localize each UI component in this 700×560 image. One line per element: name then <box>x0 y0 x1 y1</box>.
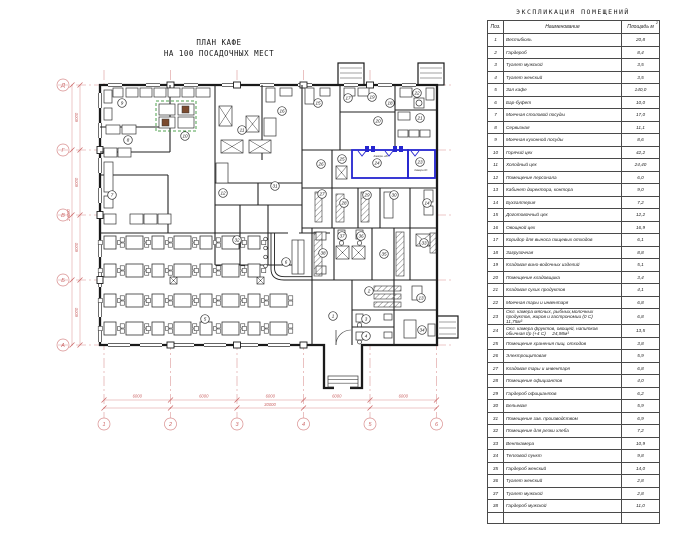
dim-label: 6000 <box>266 394 276 399</box>
cell-pos: 28 <box>488 375 504 388</box>
cell-name: Помещение хранения пищ. отходов <box>504 337 622 350</box>
cell-pos: 11 <box>488 159 504 172</box>
chair <box>146 268 150 272</box>
chair <box>120 301 124 305</box>
plan-title-line2: НА 100 ПОСАДОЧНЫХ МЕСТ <box>164 49 274 58</box>
room-number: 9 <box>121 101 124 106</box>
cell-name: Зал кафе <box>504 84 622 97</box>
explication-title: ЭКСПЛИКАЦИЯ ПОМЕЩЕНИЙ <box>487 8 659 16</box>
cell-pos: 37 <box>488 487 504 500</box>
room-number: 13 <box>418 296 424 301</box>
table-row: 35Гардероб женский14,0 <box>488 462 660 475</box>
bar-stool <box>264 255 268 259</box>
axis-number: 3 <box>235 422 239 428</box>
cell-name: Туалет женский <box>504 71 622 84</box>
cell-area: 24,40 <box>622 159 660 172</box>
room-number: 14 <box>424 201 430 206</box>
dim-label: 6000 <box>332 394 342 399</box>
chair <box>242 268 246 272</box>
plan-title-line1: ПЛАН КАФЕ <box>196 38 241 47</box>
cell-name: Доготовочный цех <box>504 209 622 222</box>
table-row: 6Бар-буфет10,0 <box>488 96 660 109</box>
table-row: 1Вестибюль20,8 <box>488 34 660 47</box>
room-number: 19 <box>369 95 375 100</box>
chair <box>120 329 124 333</box>
table-row: 18Загрузочная8,8 <box>488 246 660 259</box>
table-row: 36Туалет женский2,8 <box>488 475 660 488</box>
table-row: 31Помещение зав. производством6,9 <box>488 412 660 425</box>
cell-pos: 29 <box>488 387 504 400</box>
dim-label: 6000 <box>199 394 209 399</box>
table-row: 3Туалет мужской3,5 <box>488 59 660 72</box>
cell-area: 7,2 <box>622 425 660 438</box>
table-row: 28Помещение официантов4,0 <box>488 375 660 388</box>
cell-area: 5,9 <box>622 400 660 413</box>
dining-table <box>104 236 116 249</box>
cell-pos: 23 <box>488 309 504 325</box>
cell-area: 6,9 <box>622 412 660 425</box>
room-number: 33 <box>421 241 427 246</box>
chair <box>262 240 266 244</box>
dining-table <box>126 294 143 307</box>
room-number: 30 <box>391 193 397 198</box>
table-row: 17Коридор для выноса пищевых отходов6,1 <box>488 234 660 247</box>
room-number: 34 <box>419 328 425 333</box>
chair <box>120 238 124 242</box>
axis-letter: Д <box>60 83 65 89</box>
axis-letter: Г <box>62 148 66 154</box>
chair <box>168 324 172 328</box>
chair <box>98 240 102 244</box>
room-number: 18 <box>387 101 393 106</box>
dining-table <box>200 322 212 335</box>
room-number: 38 <box>320 251 326 256</box>
chair <box>289 329 293 333</box>
cell-area: 42,2 <box>622 146 660 159</box>
room-number: 27 <box>318 192 325 197</box>
cell-area: 9,8 <box>622 450 660 463</box>
chair <box>168 301 172 305</box>
axis-number: 2 <box>168 422 172 428</box>
cell-name: Гардероб официантов <box>504 387 622 400</box>
cell-area: 10,0 <box>622 96 660 109</box>
dining-table <box>248 264 260 277</box>
dim-label: 6000 <box>74 307 79 317</box>
cell-pos: 17 <box>488 234 504 247</box>
bar-stool <box>264 246 268 250</box>
cell-area: 3,8 <box>622 337 660 350</box>
chair <box>242 326 246 330</box>
room-number: 31 <box>272 184 278 189</box>
cell-area: 17,0 <box>622 109 660 122</box>
cell-name: Гардероб мужской <box>504 500 622 513</box>
cell-name: Туалет женский <box>504 475 622 488</box>
dim-label: 6000 <box>133 394 143 399</box>
cell-name: Кабинет директора, контора <box>504 184 622 197</box>
dining-table <box>104 322 116 335</box>
chair <box>98 298 102 302</box>
room-number: 36 <box>358 234 364 239</box>
room-number: 10 <box>182 134 188 139</box>
cell-name: Электрощитовая <box>504 350 622 363</box>
cell-pos: 20 <box>488 271 504 284</box>
chair <box>216 271 220 275</box>
dim-label: 6000 <box>74 242 79 252</box>
cell-area: 6,8 <box>622 309 660 325</box>
cell-pos: 35 <box>488 462 504 475</box>
dining-table <box>248 322 260 335</box>
dining-table <box>152 236 164 249</box>
cell-area: 3,4 <box>622 271 660 284</box>
chair <box>194 268 198 272</box>
table-row: 14Бухгалтерия7,2 <box>488 196 660 209</box>
chair <box>120 271 124 275</box>
dining-table <box>200 294 212 307</box>
cell-pos: 22 <box>488 296 504 309</box>
cell-area: 6,8 <box>622 362 660 375</box>
chair <box>146 326 150 330</box>
cell-name: Помещение кладовщика <box>504 271 622 284</box>
cell-name: Моечная тары и инвентаря <box>504 296 622 309</box>
cell-pos: 1 <box>488 34 504 47</box>
cell-name: Тепловой пункт <box>504 450 622 463</box>
dining-table <box>126 322 143 335</box>
cell-pos: 21 <box>488 284 504 297</box>
room-number: 20 <box>374 119 381 124</box>
table-row: 29Гардероб официантов6,2 <box>488 387 660 400</box>
cell-pos: 6 <box>488 96 504 109</box>
dim-total-bottom: 30000 <box>264 402 276 407</box>
cell-name: Моечная столовой посуды <box>504 109 622 122</box>
room-number: 3 <box>365 317 368 322</box>
chair <box>120 243 124 247</box>
cell-pos: 36 <box>488 475 504 488</box>
cell-pos: 18 <box>488 246 504 259</box>
table-row: 12Помещение персонала6,0 <box>488 171 660 184</box>
chair <box>216 296 220 300</box>
cell-area: 140,0 <box>622 84 660 97</box>
table-row: 23Охл. камера мясных, рыбных,молочных пр… <box>488 309 660 325</box>
cell-area: 11,0 <box>622 500 660 513</box>
table-row: 19Кладовая вино-водочных изделий5,1 <box>488 259 660 272</box>
cell-name: Бельевая <box>504 400 622 413</box>
cell-pos: 14 <box>488 196 504 209</box>
dim-label: 6000 <box>74 177 79 187</box>
dining-table <box>222 322 239 335</box>
cell-area: 3,5 <box>622 59 660 72</box>
dining-table <box>174 236 191 249</box>
cell-name: Горячий цех <box>504 146 622 159</box>
cell-area: 13,5 <box>622 325 660 338</box>
cell-area: 9,0 <box>622 184 660 197</box>
dining-table <box>174 322 191 335</box>
cell-name: Коридор для выноса пищевых отходов <box>504 234 622 247</box>
cell-area: 14,0 <box>622 462 660 475</box>
cell-area: 7,2 <box>622 196 660 209</box>
chair <box>264 329 268 333</box>
cell-name: Кладовая сухих продуктов <box>504 284 622 297</box>
room-number: 16 <box>279 109 285 114</box>
col-header-name: Наименование <box>504 21 622 34</box>
table-row: 25Помещение хранения пищ. отходов3,8 <box>488 337 660 350</box>
cell-pos: 27 <box>488 362 504 375</box>
dining-table <box>152 264 164 277</box>
table-row: 33Венткамера10,9 <box>488 437 660 450</box>
dining-table <box>104 264 116 277</box>
col-header-pos: Поз. <box>488 21 504 34</box>
room-number: 25 <box>338 157 345 162</box>
table-row: 5Зал кафе140,0 <box>488 84 660 97</box>
cell-name: Охл. камера фруктов, овощей, напитков об… <box>504 325 622 338</box>
cell-pos: 2 <box>488 46 504 59</box>
chair <box>98 326 102 330</box>
table-row: 38Гардероб мужской11,0 <box>488 500 660 513</box>
cell-pos: 13 <box>488 184 504 197</box>
room-number: 5 <box>204 317 207 322</box>
chair <box>262 268 266 272</box>
axis-number: 6 <box>435 422 439 428</box>
chair <box>168 238 172 242</box>
chair <box>120 266 124 270</box>
chair <box>194 326 198 330</box>
room-number: 12 <box>220 191 226 196</box>
dining-table <box>104 294 116 307</box>
cell-area: 3,5 <box>622 71 660 84</box>
dining-table <box>270 294 287 307</box>
dining-table <box>152 322 164 335</box>
table-row: 27Кладовая тары и инвентаря6,8 <box>488 362 660 375</box>
cell-name: Холодный цех <box>504 159 622 172</box>
room-number: 7 <box>111 193 114 198</box>
cell-area: 6,8 <box>622 296 660 309</box>
chair <box>216 329 220 333</box>
dining-table <box>174 294 191 307</box>
cell-name: Охл. камера мясных, рыбных,молочных прод… <box>504 309 622 325</box>
cell-pos: 12 <box>488 171 504 184</box>
cell-area: 6,1 <box>622 234 660 247</box>
table-row: 9Моечная кухонной посуды8,6 <box>488 134 660 147</box>
cell-area: 8,6 <box>622 134 660 147</box>
cell-pos: 4 <box>488 71 504 84</box>
chair <box>194 298 198 302</box>
room-number: 11 <box>240 128 245 133</box>
room-number: 21 <box>416 116 423 121</box>
chair <box>168 329 172 333</box>
table-row: 13Кабинет директора, контора9,0 <box>488 184 660 197</box>
table-row: 8Сервизная11,1 <box>488 121 660 134</box>
cell-pos: 15 <box>488 209 504 222</box>
room-number: 1 <box>332 314 335 319</box>
chair <box>289 296 293 300</box>
chair <box>242 298 246 302</box>
dining-table <box>174 264 191 277</box>
chair <box>289 301 293 305</box>
table-row: 22Моечная тары и инвентаря6,8 <box>488 296 660 309</box>
table-row: 32Помещение для резки хлеба7,2 <box>488 425 660 438</box>
explication-table: Поз. Наименование Площадь м2 1Вестибюль2… <box>487 20 660 524</box>
dining-table <box>200 236 212 249</box>
table-row: 16Овощной цех16,9 <box>488 221 660 234</box>
cell-pos: 5 <box>488 84 504 97</box>
dim-total-left: 24000 <box>66 209 71 222</box>
cell-name: Помещение персонала <box>504 171 622 184</box>
dining-table <box>248 294 260 307</box>
cell-area: 6,2 <box>622 387 660 400</box>
cell-area: 2,8 <box>622 487 660 500</box>
cell-pos: 33 <box>488 437 504 450</box>
dining-table <box>222 264 239 277</box>
cell-area: 5,1 <box>622 259 660 272</box>
chair <box>264 324 268 328</box>
axis-letter: В <box>61 213 65 219</box>
table-header-row: Поз. Наименование Площадь м2 <box>488 21 660 34</box>
cell-pos: 3 <box>488 59 504 72</box>
room-number: 35 <box>381 252 387 257</box>
dining-table <box>222 294 239 307</box>
cell-pos: 30 <box>488 400 504 413</box>
chair <box>216 301 220 305</box>
table-row: 15Доготовочный цех12,2 <box>488 209 660 222</box>
col-header-area: Площадь м2 <box>622 21 660 34</box>
dim-label: 6000 <box>399 394 409 399</box>
chair <box>168 266 172 270</box>
cell-pos: 25 <box>488 337 504 350</box>
chair <box>216 324 220 328</box>
cell-name: Венткамера <box>504 437 622 450</box>
chair <box>120 324 124 328</box>
cell-name: Туалет мужской <box>504 59 622 72</box>
cell-area: 2,8 <box>622 475 660 488</box>
table-row: 34Тепловой пункт9,8 <box>488 450 660 463</box>
chair <box>146 240 150 244</box>
cell-name: Помещение зав. производством <box>504 412 622 425</box>
dining-table <box>126 264 143 277</box>
chair <box>98 268 102 272</box>
table-row-empty <box>488 512 660 523</box>
cell-name: Загрузочная <box>504 246 622 259</box>
room24-label: Камера +4С <box>374 154 389 158</box>
room-number: 26 <box>317 162 324 167</box>
floor-plan: Камера +4С Камера 0С 1234567891011121314… <box>0 0 487 560</box>
room-number: 32 <box>234 238 240 243</box>
room-number: 24 <box>373 161 380 166</box>
chair <box>264 301 268 305</box>
dining-table <box>200 264 212 277</box>
dining-table <box>248 236 260 249</box>
axis-number: 5 <box>368 422 372 428</box>
room-number: 2 <box>367 289 371 294</box>
cell-pos: 19 <box>488 259 504 272</box>
room-number: 15 <box>315 101 321 106</box>
table-row: 37Туалет мужской2,8 <box>488 487 660 500</box>
axis-letter: А <box>60 343 65 349</box>
table-row: 21Кладовая сухих продуктов4,1 <box>488 284 660 297</box>
table-row: 11Холодный цех24,40 <box>488 159 660 172</box>
cell-name: Бухгалтерия <box>504 196 622 209</box>
cell-name: Гардероб <box>504 46 622 59</box>
chair <box>216 238 220 242</box>
cell-area: 10,9 <box>622 437 660 450</box>
cell-name: Гардероб женский <box>504 462 622 475</box>
chair <box>168 296 172 300</box>
cell-area: 5,9 <box>622 350 660 363</box>
axis-letter: Б <box>61 278 65 284</box>
cell-area: 6,0 <box>622 171 660 184</box>
room-number: 23 <box>416 160 423 165</box>
cell-area: 16,9 <box>622 221 660 234</box>
cell-pos: 9 <box>488 134 504 147</box>
cell-pos: 26 <box>488 350 504 363</box>
table-row: 4Туалет женский3,5 <box>488 71 660 84</box>
table-row: 7Моечная столовой посуды17,0 <box>488 109 660 122</box>
dining-table <box>270 322 287 335</box>
cell-area: 8,4 <box>622 46 660 59</box>
cell-name: Сервизная <box>504 121 622 134</box>
cell-pos: 32 <box>488 425 504 438</box>
room-number: 6 <box>285 260 288 265</box>
cell-area: 12,2 <box>622 209 660 222</box>
room-number: 28 <box>340 201 347 206</box>
cell-pos: 31 <box>488 412 504 425</box>
room-number: 29 <box>363 193 370 198</box>
cell-name: Кладовая тары и инвентаря <box>504 362 622 375</box>
cell-pos: 7 <box>488 109 504 122</box>
room-number: 17 <box>345 96 351 101</box>
room-number: 4 <box>365 334 368 339</box>
cell-pos: 16 <box>488 221 504 234</box>
chair <box>216 243 220 247</box>
table-row: 2Гардероб8,4 <box>488 46 660 59</box>
axis-number: 1 <box>102 422 105 428</box>
room-number: 22 <box>413 91 420 96</box>
room23-label: Камера 0С <box>414 168 427 172</box>
room-number: 8 <box>127 138 130 143</box>
cell-name: Овощной цех <box>504 221 622 234</box>
table-row: 24Охл. камера фруктов, овощей, напитков … <box>488 325 660 338</box>
cell-area: 20,8 <box>622 34 660 47</box>
cell-pos: 8 <box>488 121 504 134</box>
cell-area: 8,8 <box>622 246 660 259</box>
cell-pos: 24 <box>488 325 504 338</box>
chair <box>216 266 220 270</box>
cell-pos: 38 <box>488 500 504 513</box>
cell-area: 11,1 <box>622 121 660 134</box>
table-row: 10Горячий цех42,2 <box>488 146 660 159</box>
cell-name: Помещение для резки хлеба <box>504 425 622 438</box>
drawing-sheet: Камера +4С Камера 0С 1234567891011121314… <box>0 0 700 560</box>
table-row: 26Электрощитовая5,9 <box>488 350 660 363</box>
cell-pos: 34 <box>488 450 504 463</box>
cell-name: Помещение официантов <box>504 375 622 388</box>
cell-name: Туалет мужской <box>504 487 622 500</box>
axis-number: 4 <box>302 422 305 428</box>
chair <box>146 298 150 302</box>
table-row: 30Бельевая5,9 <box>488 400 660 413</box>
chair <box>289 324 293 328</box>
explication-panel: ЭКСПЛИКАЦИЯ ПОМЕЩЕНИЙ Поз. Наименование … <box>487 8 659 524</box>
room-number: 37 <box>339 234 345 239</box>
cell-name: Моечная кухонной посуды <box>504 134 622 147</box>
dining-table <box>126 236 143 249</box>
chair <box>168 243 172 247</box>
chair <box>264 296 268 300</box>
dim-label: 6000 <box>74 112 79 122</box>
chair <box>242 240 246 244</box>
chair <box>194 240 198 244</box>
dining-table <box>152 294 164 307</box>
table-row: 20Помещение кладовщика3,4 <box>488 271 660 284</box>
cell-area: 4,1 <box>622 284 660 297</box>
